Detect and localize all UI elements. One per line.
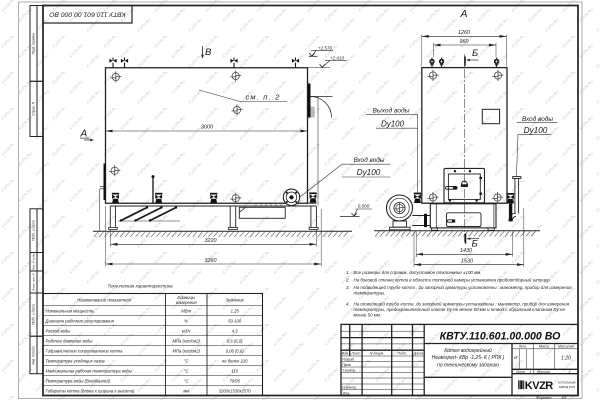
svg-text:2: 2: [568, 370, 571, 374]
svg-text:Все размеры для справок, допус: Все размеры для справок, допустимое откл…: [354, 270, 482, 275]
svg-text:Рабочее давление воды: Рабочее давление воды: [46, 339, 93, 344]
svg-text:КВТУ.110.601.00.000 ВО: КВТУ.110.601.00.000 ВО: [440, 330, 561, 342]
svg-text:Вход воды: Вход воды: [353, 156, 384, 164]
svg-text:Перв. примен.: Перв. примен.: [32, 32, 36, 54]
svg-text:Лит.: Лит.: [518, 345, 527, 349]
svg-text:не более 220: не более 220: [222, 359, 248, 364]
svg-text:ЗАВОД РЭП: ЗАВОД РЭП: [559, 385, 575, 389]
svg-text:Масштаб: Масштаб: [558, 345, 575, 349]
svg-text:м3/ч: м3/ч: [182, 329, 191, 334]
svg-text:На отводящей трубе котла ,до з: На отводящей трубе котла ,до запорной ар…: [354, 300, 570, 306]
svg-text:МВт: МВт: [181, 309, 191, 314]
svg-text:+2.410: +2.410: [330, 55, 345, 60]
svg-text:Инв. N дубл.: Инв. N дубл.: [32, 253, 36, 271]
svg-text:На боковой стенке котла в обла: На боковой стенке котла в области топочн…: [354, 276, 551, 282]
svg-text:Утв.: Утв.: [342, 391, 350, 395]
svg-text:Подп. и дата: Подп. и дата: [32, 304, 36, 325]
svg-text:3260: 3260: [205, 258, 217, 264]
svg-text:Справ. N: Справ. N: [32, 101, 36, 115]
svg-text:1260: 1260: [458, 30, 470, 36]
svg-text:Значение: Значение: [226, 297, 245, 302]
svg-text:Heatexpert- КВр -1,25- К ( РПК: Heatexpert- КВр -1,25- К ( РПК ): [432, 355, 505, 361]
svg-text:Габариты котла (длина х ширина: Габариты котла (длина х ширина х высота): [46, 389, 136, 394]
svg-text:N докум.: N докум.: [370, 351, 384, 355]
svg-text:Расход воды: Расход воды: [46, 329, 71, 334]
svg-text:Дата: Дата: [413, 351, 423, 355]
svg-text:0,06 (0,6): 0,06 (0,6): [226, 349, 245, 354]
svg-text:Dу100: Dу100: [524, 126, 548, 135]
svg-text:измерения: измерения: [176, 300, 198, 305]
svg-text:На подводящей трубе котла ,: На подводящей трубе котла , до запорной …: [354, 284, 573, 290]
svg-text:Максимальная рабочая температу: Максимальная рабочая температура воды: [46, 369, 132, 374]
svg-text:2.: 2.: [345, 277, 350, 282]
svg-text:А3: А3: [561, 395, 568, 400]
svg-text:менее 50 мм.: менее 50 мм.: [354, 312, 382, 317]
svg-text:Температура воды (Вход/выход): Температура воды (Вход/выход): [46, 379, 111, 384]
svg-text:960: 960: [460, 39, 469, 45]
svg-text:Dу100: Dу100: [381, 120, 405, 129]
svg-text:Dу100: Dу100: [357, 168, 381, 177]
svg-text:1430: 1430: [460, 248, 472, 254]
svg-text:Разраб.: Разраб.: [342, 358, 355, 362]
svg-text:Котел водогрейный: Котел водогрейный: [444, 347, 492, 354]
svg-text:Т.контр.: Т.контр.: [342, 369, 356, 373]
svg-text:Н.контр.: Н.контр.: [342, 386, 357, 390]
svg-text:0.000: 0.000: [358, 204, 370, 209]
svg-text:Лист: Лист: [515, 370, 525, 374]
svg-text:1: 1: [530, 370, 532, 374]
svg-text:Б: Б: [472, 48, 478, 59]
svg-text:3.: 3.: [346, 285, 350, 290]
svg-text:Техническая характеристика: Техническая характеристика: [107, 283, 172, 288]
svg-text:Масса: Масса: [539, 345, 549, 349]
svg-text:Пров.: Пров.: [342, 363, 351, 367]
svg-text:4,3: 4,3: [232, 329, 238, 334]
svg-text:МПа (кгс/см2): МПа (кгс/см2): [173, 339, 201, 344]
svg-text:115: 115: [231, 369, 238, 374]
svg-text:В: В: [205, 47, 212, 58]
svg-text:Гидравлическое сопротивление к: Гидравлическое сопротивление котла: [46, 349, 124, 354]
svg-text:3000: 3000: [201, 124, 214, 130]
svg-text:1530: 1530: [461, 259, 473, 265]
svg-text:+2.570: +2.570: [318, 45, 333, 50]
svg-text:1,25: 1,25: [231, 309, 240, 314]
svg-text:1:20: 1:20: [561, 356, 571, 362]
svg-text:%: %: [184, 319, 188, 324]
svg-text:Диапазон рабочего регулировани: Диапазон рабочего регулирования: [45, 319, 115, 324]
svg-text:Листов: Листов: [536, 370, 550, 374]
svg-text:Вход воды: Вход воды: [522, 115, 553, 123]
svg-text:KVZR: KVZR: [525, 380, 554, 392]
svg-text:3220: 3220: [205, 238, 217, 244]
svg-text:см. п. 2: см. п. 2: [245, 93, 280, 102]
svg-text:Номинальная мощность: Номинальная мощность: [46, 309, 95, 314]
svg-text:Подп. и дата: Подп. и дата: [32, 220, 36, 241]
svg-text:по техническому заданию: по техническому заданию: [437, 363, 499, 369]
svg-text:А: А: [460, 8, 468, 20]
svg-text:Взам. инв. N: Взам. инв. N: [32, 272, 36, 290]
svg-text:Инв. N подл.: Инв. N подл.: [32, 345, 36, 364]
svg-text:Формат: Формат: [536, 395, 552, 400]
svg-text:Б: Б: [472, 239, 478, 250]
svg-text:70/95: 70/95: [229, 379, 240, 384]
svg-text:Наименование показателя: Наименование показателя: [77, 297, 131, 302]
svg-text:4.: 4.: [346, 301, 350, 306]
svg-text:50-100: 50-100: [228, 319, 242, 324]
svg-text:Изм.: Изм.: [342, 351, 349, 355]
svg-text:0,6 (6,0): 0,6 (6,0): [227, 339, 243, 344]
svg-text:Температура уходящих газов: Температура уходящих газов: [46, 359, 106, 364]
svg-text:1.: 1.: [346, 270, 350, 275]
svg-text:Лист: Лист: [350, 351, 360, 355]
svg-text:Подп.: Подп.: [397, 351, 406, 355]
svg-text:температуры.: температуры.: [354, 290, 386, 295]
svg-text:3260х1530х2570: 3260х1530х2570: [219, 389, 252, 394]
svg-text:температуры, предохранительный: температуры, предохранительный клапан Dу…: [354, 306, 566, 312]
svg-text:мм: мм: [183, 389, 189, 394]
svg-text:МПа (кгс/см2): МПа (кгс/см2): [173, 349, 201, 354]
svg-text:КВТУ.110.601.00.000 ВО: КВТУ.110.601.00.000 ВО: [49, 10, 126, 17]
svg-text:Выход воды: Выход воды: [372, 107, 409, 115]
